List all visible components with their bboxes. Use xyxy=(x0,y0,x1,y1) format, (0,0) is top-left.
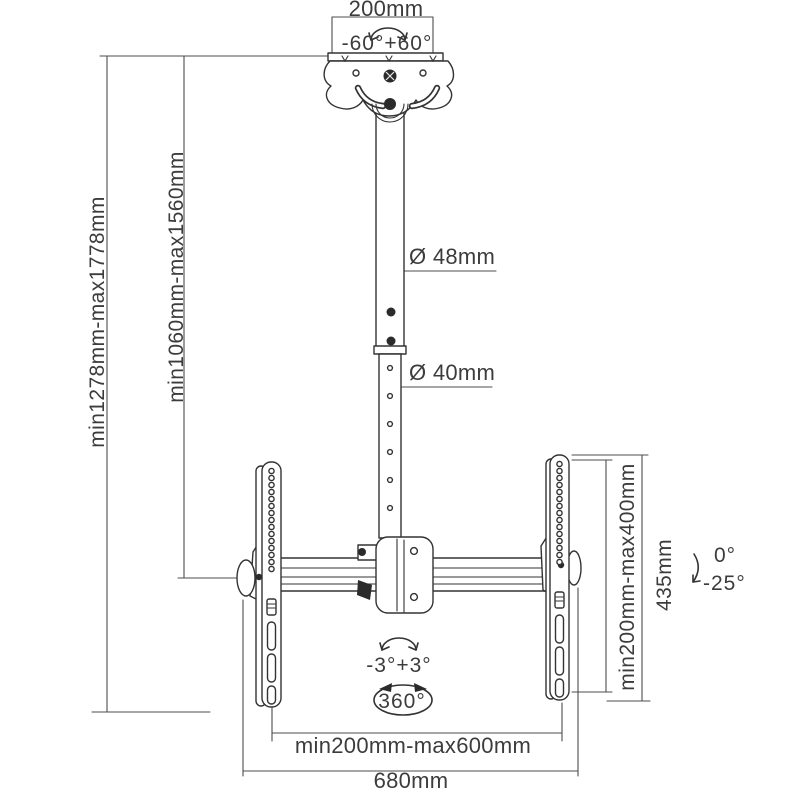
pole-bolt xyxy=(387,308,396,317)
pole-bolt xyxy=(387,337,396,346)
label-tilt-up: 0° xyxy=(714,544,736,567)
hub-bolt xyxy=(411,548,418,555)
label-tilt-down: -25° xyxy=(703,572,746,595)
pivot-bolt xyxy=(384,98,396,110)
label-rotation: 360° xyxy=(378,690,425,713)
left-rail-holes xyxy=(269,468,274,571)
label-bracket-height: 435mm xyxy=(653,539,676,611)
hub-bolt xyxy=(411,594,418,601)
label-vesa-width-range: min200mm-max600mm xyxy=(295,733,531,758)
pole-collar xyxy=(374,346,406,354)
label-vesa-height-range: min200mm-max400mm xyxy=(616,463,639,690)
label-pole-height: min1060mm-max1560mm xyxy=(165,151,188,403)
label-swivel-range: -60°+60° xyxy=(342,32,433,55)
left-knob-bolt xyxy=(256,574,262,580)
plate-hole xyxy=(353,70,359,76)
label-crossbar-width: 680mm xyxy=(374,768,449,793)
label-overall-height: min1278mm-max1778mm xyxy=(86,196,109,448)
technical-drawing: 200mm -60°+60° min1278mm-max1778mm min10… xyxy=(0,0,800,800)
label-upper-pipe-diameter: Ø 48mm xyxy=(409,244,495,269)
left-knob xyxy=(237,560,255,596)
right-rail-holes xyxy=(557,461,562,564)
hub-clamp-knob xyxy=(358,548,366,556)
plate-hole xyxy=(420,70,426,76)
diagram-canvas: 200mm -60°+60° min1278mm-max1778mm min10… xyxy=(0,0,800,800)
label-ceiling-plate-width: 200mm xyxy=(349,0,424,21)
label-level-adjust: -3°+3° xyxy=(366,654,431,677)
label-lower-pipe-diameter: Ø 40mm xyxy=(409,360,495,385)
